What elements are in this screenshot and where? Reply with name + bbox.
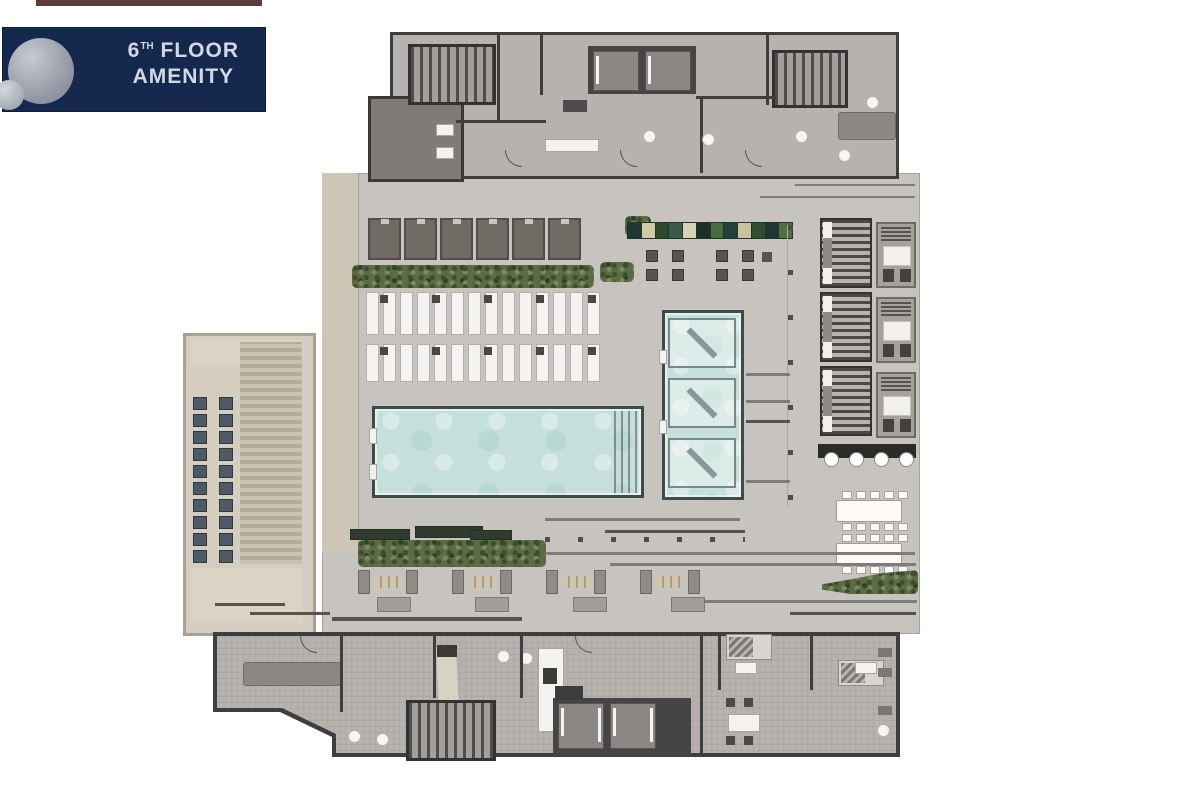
planter-box (470, 530, 512, 540)
lounge-side-tables-1 (380, 295, 596, 303)
tseat (219, 499, 233, 512)
communal-dining-table (836, 491, 908, 531)
chair-row (836, 523, 908, 531)
theater-seating (193, 397, 233, 563)
lounger (366, 292, 379, 335)
cafe-table (762, 252, 772, 262)
deck-joint-line (610, 563, 916, 566)
chair-sq (884, 523, 894, 531)
tseat (193, 397, 207, 410)
cabana (548, 218, 581, 260)
side-table (484, 295, 492, 303)
shelf (878, 648, 892, 657)
chair-sq (842, 523, 852, 531)
spa-lounger (668, 318, 736, 368)
chair (726, 736, 735, 745)
pavilion (820, 366, 872, 436)
wall (497, 35, 500, 120)
tseat (193, 533, 207, 546)
wall (718, 636, 721, 690)
pool-ladder (369, 428, 377, 444)
wall (696, 96, 776, 99)
bench (573, 597, 607, 612)
lap-pool (372, 406, 644, 498)
tseat (219, 431, 233, 444)
bench (475, 597, 509, 612)
sink-fixture (795, 130, 808, 143)
planter-block (642, 223, 655, 238)
side-table (380, 347, 388, 355)
tseat (193, 414, 207, 427)
sink-fixture (877, 724, 890, 737)
chair-sq (884, 491, 894, 499)
side-table (536, 295, 544, 303)
stool (899, 452, 914, 467)
wc-fixture (436, 147, 454, 159)
wall (810, 636, 813, 690)
planter-block (738, 223, 751, 238)
tseat (219, 550, 233, 563)
cluster-cell (672, 269, 684, 281)
floor-word: FLOOR (161, 39, 240, 62)
chair-sq (842, 534, 852, 542)
lounger (366, 344, 379, 382)
tseat (193, 499, 207, 512)
tseat (193, 431, 207, 444)
table (728, 714, 760, 732)
pool-ladder (659, 350, 667, 364)
counter (545, 139, 599, 152)
pool-ladder (659, 420, 667, 434)
cluster-cell (716, 269, 728, 281)
floor-plan-page: 6TH FLOOR AMENITY (0, 0, 1200, 805)
planter-block (656, 223, 669, 238)
wall (766, 35, 769, 105)
deck-joint-line (790, 612, 916, 615)
planter-block (697, 223, 710, 238)
wall (540, 35, 543, 95)
shelf (878, 668, 892, 677)
cooktop (543, 668, 557, 684)
terrace-steps (240, 342, 302, 564)
cluster-cell (742, 269, 754, 281)
deck-joint-line (746, 480, 790, 483)
cabana (440, 218, 473, 260)
tseat (219, 533, 233, 546)
tseat (219, 448, 233, 461)
stool (824, 452, 839, 467)
seat-group (452, 568, 512, 594)
cabana (404, 218, 437, 260)
bar-stools (824, 452, 914, 467)
side-table (588, 295, 596, 303)
planter-block (669, 223, 682, 238)
chair-sq (870, 523, 880, 531)
pavilion (820, 218, 872, 288)
planter-strip (627, 222, 793, 239)
seat-group (358, 568, 418, 594)
cabana (476, 218, 509, 260)
chair-sq (870, 491, 880, 499)
wall (433, 634, 436, 698)
in-water-loungers (668, 318, 736, 488)
spa-lounger (668, 378, 736, 428)
wall (520, 634, 523, 698)
tseat (193, 516, 207, 529)
chair-row (836, 491, 908, 499)
grill-pavilions (820, 218, 872, 436)
floor-number: 6 (128, 39, 141, 62)
north-stair-shaft-west (408, 44, 496, 105)
deck-joint-line (250, 612, 330, 615)
deck-joint-line (545, 518, 740, 521)
stool-fixture (348, 730, 361, 743)
chair (744, 698, 753, 707)
deck-joint-line (545, 552, 915, 555)
deck-joint-line (760, 196, 915, 198)
pav-room (876, 372, 916, 438)
cabana (512, 218, 545, 260)
deck-joint-line (746, 420, 790, 423)
daybed (726, 634, 772, 660)
wall (456, 120, 546, 123)
planter-block (711, 223, 724, 238)
tseat (219, 516, 233, 529)
chair-sq (856, 566, 866, 574)
side-table (735, 662, 757, 674)
chair-sq (870, 534, 880, 542)
hedge-north (352, 265, 594, 288)
floor-badge: 6TH FLOOR AMENITY (0, 0, 280, 130)
chair-sq (898, 523, 908, 531)
wall (340, 634, 343, 712)
tseat (219, 465, 233, 478)
side-table (536, 347, 544, 355)
side-table (855, 662, 877, 674)
bench (377, 597, 411, 612)
shelf (878, 706, 892, 715)
chair (726, 698, 735, 707)
planter-box (350, 529, 410, 540)
north-elevator-bank (588, 46, 696, 94)
deck-joint-line (746, 373, 790, 376)
cafe-table-cluster (646, 250, 684, 281)
elev-car (558, 703, 604, 749)
deck-joint-line (605, 530, 745, 533)
table-top (836, 500, 902, 522)
chair (744, 736, 753, 745)
stool-fixture (497, 650, 510, 663)
planter-block (628, 223, 641, 238)
pool-steps (614, 411, 640, 493)
bar-island-cap (437, 645, 457, 657)
hedge-clump (600, 262, 634, 282)
deck-joint-line (215, 603, 285, 606)
tseat (193, 465, 207, 478)
cluster-cell (646, 250, 658, 262)
deck-joint-line (795, 184, 915, 186)
chair-sq (884, 534, 894, 542)
north-service-room (368, 96, 464, 182)
cabana-row (368, 218, 581, 260)
cluster-cell (716, 250, 728, 262)
deck-joint-line (746, 400, 790, 403)
column-grid-line (545, 537, 745, 542)
badge-line2: AMENITY (128, 64, 239, 90)
spa-lounger (668, 438, 736, 488)
sink-fixture (702, 133, 715, 146)
chair-sq (898, 491, 908, 499)
chair-sq (856, 523, 866, 531)
chair-sq (842, 566, 852, 574)
cafe-table-cluster (716, 250, 754, 281)
planter-block (683, 223, 696, 238)
planter-block (724, 223, 737, 238)
pavilion (820, 292, 872, 362)
tseat (193, 550, 207, 563)
pav-room (876, 297, 916, 363)
bench-row (377, 597, 705, 612)
dining-cabana-rooms (876, 222, 916, 438)
deck-joint-line (332, 617, 522, 621)
column-grid-line (787, 225, 793, 508)
wall (700, 634, 703, 755)
north-stair-shaft-east (772, 50, 848, 108)
cluster-cell (742, 250, 754, 262)
tseat (193, 482, 207, 495)
shaft-block (563, 100, 587, 112)
shaft-block (555, 686, 583, 700)
tseat (193, 448, 207, 461)
lounge-side-tables-2 (380, 347, 596, 355)
cabana (368, 218, 401, 260)
planter-block (752, 223, 765, 238)
lounge-seating-groups (358, 568, 700, 594)
tseat (219, 482, 233, 495)
badge-title: 6TH FLOOR AMENITY (128, 38, 239, 91)
tseat (219, 414, 233, 427)
sink-fixture (643, 130, 656, 143)
pav-room (876, 222, 916, 288)
chair-sq (842, 491, 852, 499)
seat-group (546, 568, 606, 594)
side-table (432, 347, 440, 355)
side-table (432, 295, 440, 303)
elev-car (593, 51, 639, 91)
south-stair-shaft (406, 700, 496, 761)
meeting-table (838, 112, 896, 140)
deck-joint-line (695, 600, 917, 603)
games-table (243, 662, 341, 686)
stool (849, 452, 864, 467)
hedge-south (358, 540, 546, 567)
sink-fixture (838, 149, 851, 162)
floor-suffix: TH (140, 41, 153, 52)
chair-sq (856, 534, 866, 542)
badge-line1: 6TH FLOOR (128, 38, 239, 64)
tseat (219, 397, 233, 410)
side-table (380, 295, 388, 303)
stool (874, 452, 889, 467)
side-table (588, 347, 596, 355)
seat-group (640, 568, 700, 594)
chair-sq (898, 534, 908, 542)
planter-block (766, 223, 779, 238)
cluster-cell (672, 250, 684, 262)
sink-fixture (866, 96, 879, 109)
stool-fixture (376, 733, 389, 746)
chair-sq (870, 566, 880, 574)
wc-fixture (436, 124, 454, 136)
chair-sq (856, 491, 866, 499)
elev-car (645, 51, 691, 91)
south-elevator-bank (553, 698, 691, 756)
side-table (484, 347, 492, 355)
chair-row (836, 534, 908, 542)
cluster-cell (646, 269, 658, 281)
deck-west-walkway (322, 173, 359, 553)
bench (671, 597, 705, 612)
elev-car (610, 703, 656, 749)
pool-ladder (369, 464, 377, 480)
